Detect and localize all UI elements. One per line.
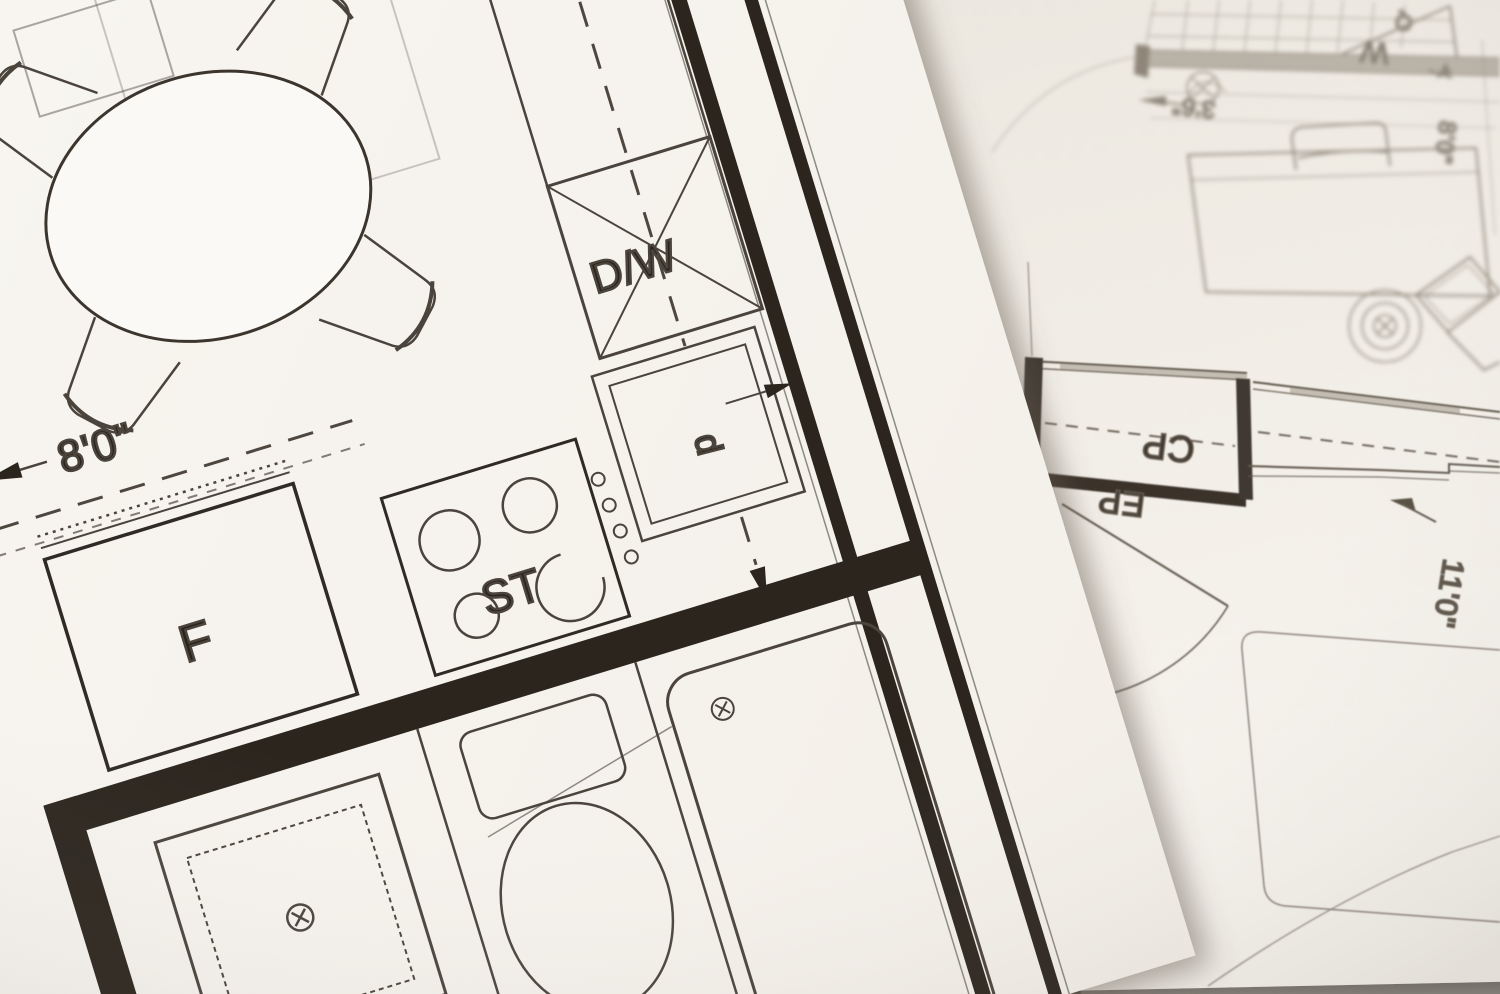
blueprint-scene: 10'0" 11'0" CP EP	[0, 0, 1500, 994]
blueprint-photo: 10'0" 11'0" CP EP	[0, 0, 1500, 994]
lighting-vignette	[0, 0, 1500, 994]
